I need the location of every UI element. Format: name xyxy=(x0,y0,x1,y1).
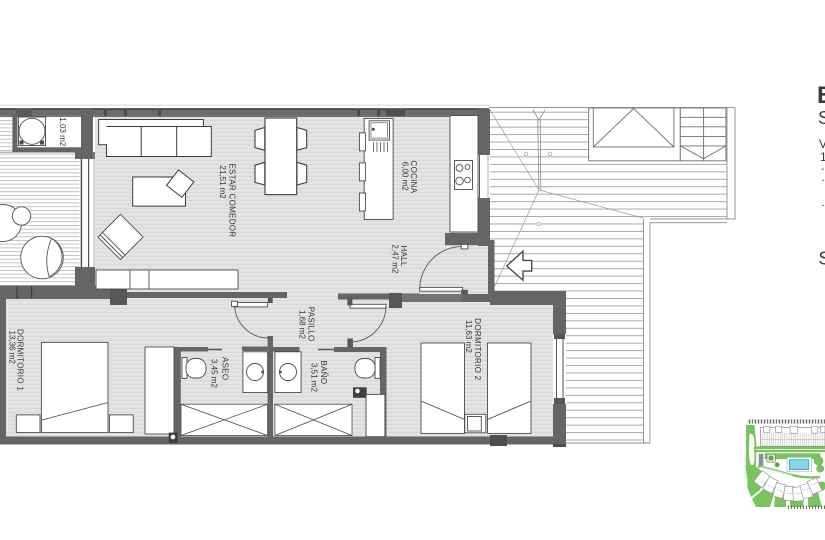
svg-text:-: - xyxy=(821,164,824,175)
svg-text:B: B xyxy=(817,82,825,109)
svg-text:S: S xyxy=(819,249,825,269)
svg-text:V: V xyxy=(819,137,825,151)
svg-text:2,47 m2: 2,47 m2 xyxy=(390,244,399,273)
svg-text:CALLE SALVADOR: CALLE SALVADOR xyxy=(744,455,748,478)
svg-text:11,63 m2: 11,63 m2 xyxy=(464,320,473,353)
svg-text:BAÑO: BAÑO xyxy=(319,361,328,385)
svg-text:PASILLO: PASILLO xyxy=(307,307,316,342)
svg-text:1,68 m2: 1,68 m2 xyxy=(298,310,307,339)
svg-text:1: 1 xyxy=(820,150,825,164)
svg-text:-: - xyxy=(822,200,825,210)
svg-text:ASEO: ASEO xyxy=(220,357,229,380)
svg-text:13,36 m2: 13,36 m2 xyxy=(8,331,17,365)
svg-text:3,51 m2: 3,51 m2 xyxy=(310,363,319,392)
svg-text:3,45 m2: 3,45 m2 xyxy=(210,359,219,388)
svg-text:DORMITORIO 2: DORMITORIO 2 xyxy=(473,318,482,380)
svg-text:1,03 m2: 1,03 m2 xyxy=(58,117,67,146)
svg-text:21,51 m2: 21,51 m2 xyxy=(218,165,227,199)
svg-text:HALL: HALL xyxy=(399,246,408,267)
svg-text:6,00 m2: 6,00 m2 xyxy=(401,162,410,191)
svg-text:ESTAR COMEDOR: ESTAR COMEDOR xyxy=(227,163,236,237)
svg-text:-: - xyxy=(822,175,825,185)
svg-text:S: S xyxy=(818,108,825,128)
